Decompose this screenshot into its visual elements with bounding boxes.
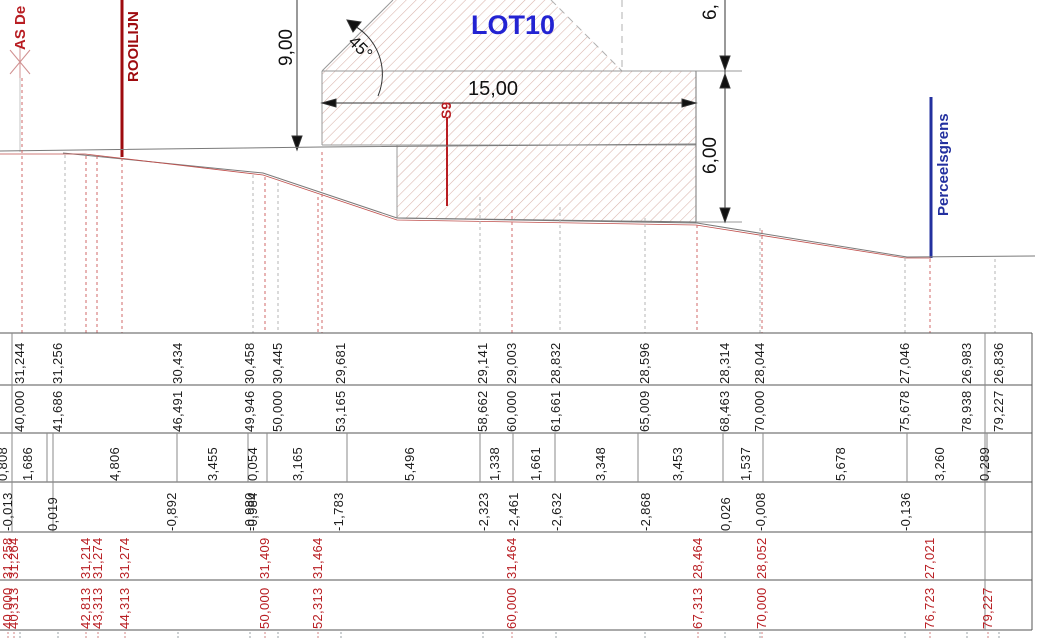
station-elevation: 30,434 <box>171 334 184 384</box>
design-elevation: 28,464 <box>691 533 704 579</box>
point-offset: 0,019 <box>46 483 59 531</box>
point-offset: -0,013 <box>1 483 14 531</box>
s9-profile-label: S9 <box>439 93 453 119</box>
station-distance: 70,000 <box>753 386 766 432</box>
design-distance: 44,313 <box>118 581 131 629</box>
station-elevation: 26,983 <box>960 334 973 384</box>
design-elevation: 31,274 <box>91 533 104 579</box>
design-elevation: 31,274 <box>118 533 131 579</box>
station-elevation: 28,832 <box>549 334 562 384</box>
design-distance: 43,313 <box>91 581 104 629</box>
station-distance: 68,463 <box>718 386 731 432</box>
station-elevation: 30,445 <box>271 334 284 384</box>
point-offset: -0,984 <box>246 483 259 531</box>
station-elevation: 29,141 <box>476 334 489 384</box>
segment-height: 1,686 <box>21 434 34 481</box>
segment-height: 0,054 <box>246 434 259 481</box>
station-elevation: 28,044 <box>753 334 766 384</box>
point-offset: -2,461 <box>507 483 520 531</box>
segment-height: 0,289 <box>978 434 991 481</box>
point-offset: -2,632 <box>550 483 563 531</box>
point-offset: -0,136 <box>899 483 912 531</box>
design-distance: 60,000 <box>505 581 518 629</box>
station-elevation: 30,458 <box>243 334 256 384</box>
point-offset: -0,892 <box>165 483 178 531</box>
design-distance: 76,723 <box>923 581 936 629</box>
station-elevation: 31,256 <box>51 334 64 384</box>
design-distance: 52,313 <box>311 581 324 629</box>
point-offset: -2,323 <box>477 483 490 531</box>
design-elevation: 27,021 <box>923 533 936 579</box>
station-distance: 58,662 <box>476 386 489 432</box>
station-distance: 60,000 <box>505 386 518 432</box>
next-row-cut-ticks <box>8 632 999 640</box>
segment-height: 0,808 <box>0 434 9 481</box>
table-row-design-elevations: 31,25831,26431,21431,27431,27431,40931,4… <box>0 533 1040 579</box>
design-distance: 70,000 <box>755 581 768 629</box>
design-elevation: 31,464 <box>505 533 518 579</box>
station-distance: 53,165 <box>334 386 347 432</box>
station-elevation: 28,314 <box>718 334 731 384</box>
perceelsgrens-label: Perceelsgrens <box>936 98 951 216</box>
point-offset: -0,008 <box>754 483 767 531</box>
table-row-existing-elevations: 31,24431,25630,43430,45830,44529,68129,1… <box>0 334 1040 384</box>
segment-height: 1,537 <box>739 434 752 481</box>
segment-height: 3,455 <box>206 434 219 481</box>
dimension-15m-label: 15,00 <box>445 78 541 101</box>
station-distance: 79,227 <box>992 386 1005 432</box>
design-distance: 67,313 <box>691 581 704 629</box>
dimension-6m-label: 6,00 <box>701 126 720 174</box>
station-elevation: 26,836 <box>992 334 1005 384</box>
station-distance: 61,661 <box>549 386 562 432</box>
design-elevation: 28,052 <box>755 533 768 579</box>
segment-height: 4,806 <box>108 434 121 481</box>
station-distance: 50,000 <box>271 386 284 432</box>
axis-marker-icon <box>10 46 30 152</box>
cross-section-profile-drawing: AS De ROOILIJN 9,00 45° LOT10 15,00 S9 6… <box>0 0 1040 640</box>
table-row-point-offsets: -0,0130,019-0,892-0,980-0,984-1,783-2,32… <box>0 483 1040 531</box>
point-offset: -2,868 <box>639 483 652 531</box>
segment-height: 3,260 <box>933 434 946 481</box>
station-elevation: 29,681 <box>334 334 347 384</box>
segment-height: 3,453 <box>671 434 684 481</box>
point-offset: -1,783 <box>332 483 345 531</box>
station-distance: 78,938 <box>960 386 973 432</box>
segment-height: 1,661 <box>529 434 542 481</box>
station-distance: 75,678 <box>898 386 911 432</box>
station-elevation: 28,596 <box>638 334 651 384</box>
design-elevation: 31,409 <box>258 533 271 579</box>
station-elevation: 31,244 <box>13 334 26 384</box>
dimension-6m-top-label: 6, <box>701 0 720 20</box>
station-distance: 41,686 <box>51 386 64 432</box>
design-elevation: 31,264 <box>7 533 20 579</box>
segment-height: 5,678 <box>834 434 847 481</box>
table-row-segment-heights: 0,8081,6864,8063,4550,0543,1655,4961,338… <box>0 434 1040 481</box>
design-distance: 50,000 <box>258 581 271 629</box>
design-distance: 79,227 <box>981 581 994 629</box>
rooilijn-label: ROOILIJN <box>126 0 141 82</box>
table-row-existing-distances: 40,00041,68646,49149,94650,00053,16558,6… <box>0 386 1040 432</box>
dimension-9m-label: 9,00 <box>277 8 296 66</box>
station-distance: 65,009 <box>638 386 651 432</box>
axis-label: AS De <box>13 0 28 50</box>
station-elevation: 27,046 <box>898 334 911 384</box>
point-offset: 0,026 <box>719 483 732 531</box>
segment-height: 1,338 <box>488 434 501 481</box>
station-distance: 49,946 <box>243 386 256 432</box>
design-elevation: 31,464 <box>311 533 324 579</box>
table-row-design-distances: 40,00040,31342,81343,31344,31350,00052,3… <box>0 581 1040 629</box>
station-distance: 40,000 <box>13 386 26 432</box>
lot-title: LOT10 <box>448 10 578 41</box>
segment-height: 3,165 <box>291 434 304 481</box>
station-distance: 46,491 <box>171 386 184 432</box>
segment-height: 5,496 <box>403 434 416 481</box>
segment-height: 3,348 <box>594 434 607 481</box>
station-elevation: 29,003 <box>505 334 518 384</box>
design-distance: 40,313 <box>7 581 20 629</box>
